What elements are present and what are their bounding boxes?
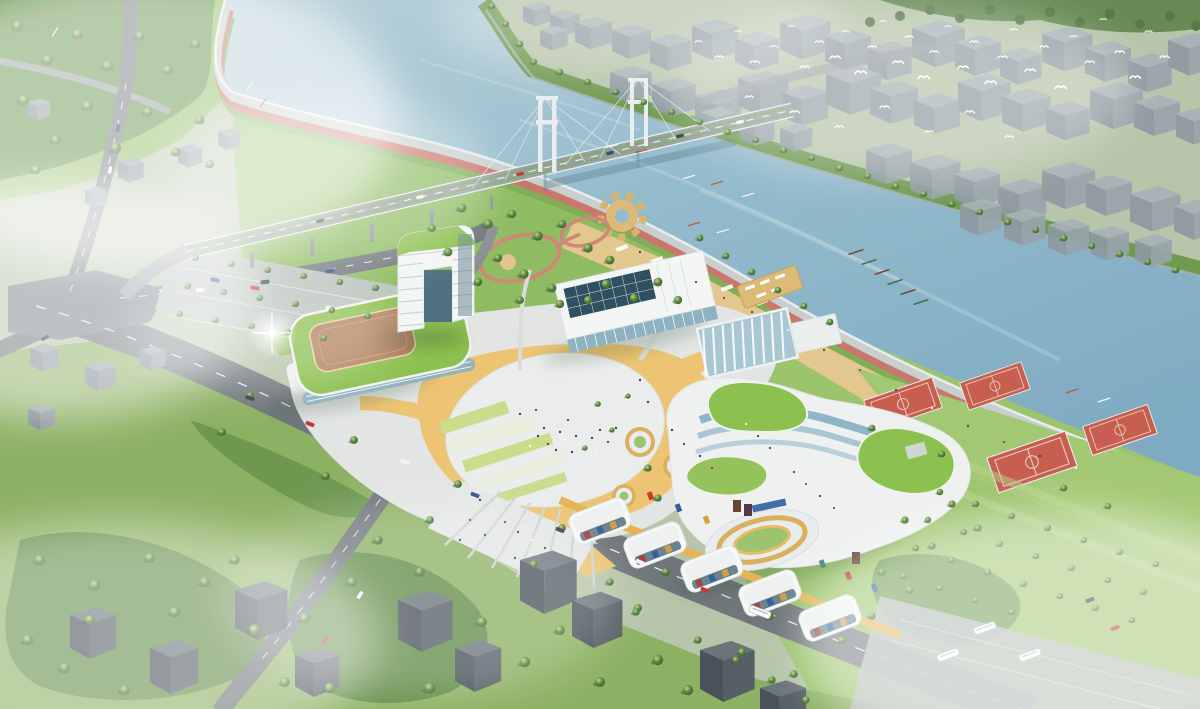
sun-flare <box>246 307 298 359</box>
poster-screen <box>733 500 741 512</box>
playground-circle <box>500 254 516 270</box>
tower-arch-glass <box>424 270 452 322</box>
masterplan-rendering <box>0 0 1200 709</box>
aerial-render-canvas <box>0 0 1200 709</box>
poster-screen <box>744 504 752 516</box>
tower-glass-face <box>458 234 472 316</box>
